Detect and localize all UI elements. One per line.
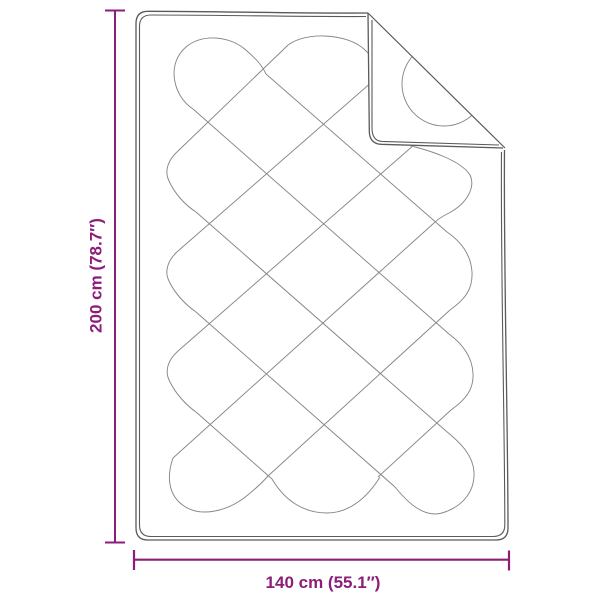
svg-text:140 cm (55.1″): 140 cm (55.1″) xyxy=(266,573,381,592)
svg-text:200 cm (78.7″): 200 cm (78.7″) xyxy=(87,218,106,333)
